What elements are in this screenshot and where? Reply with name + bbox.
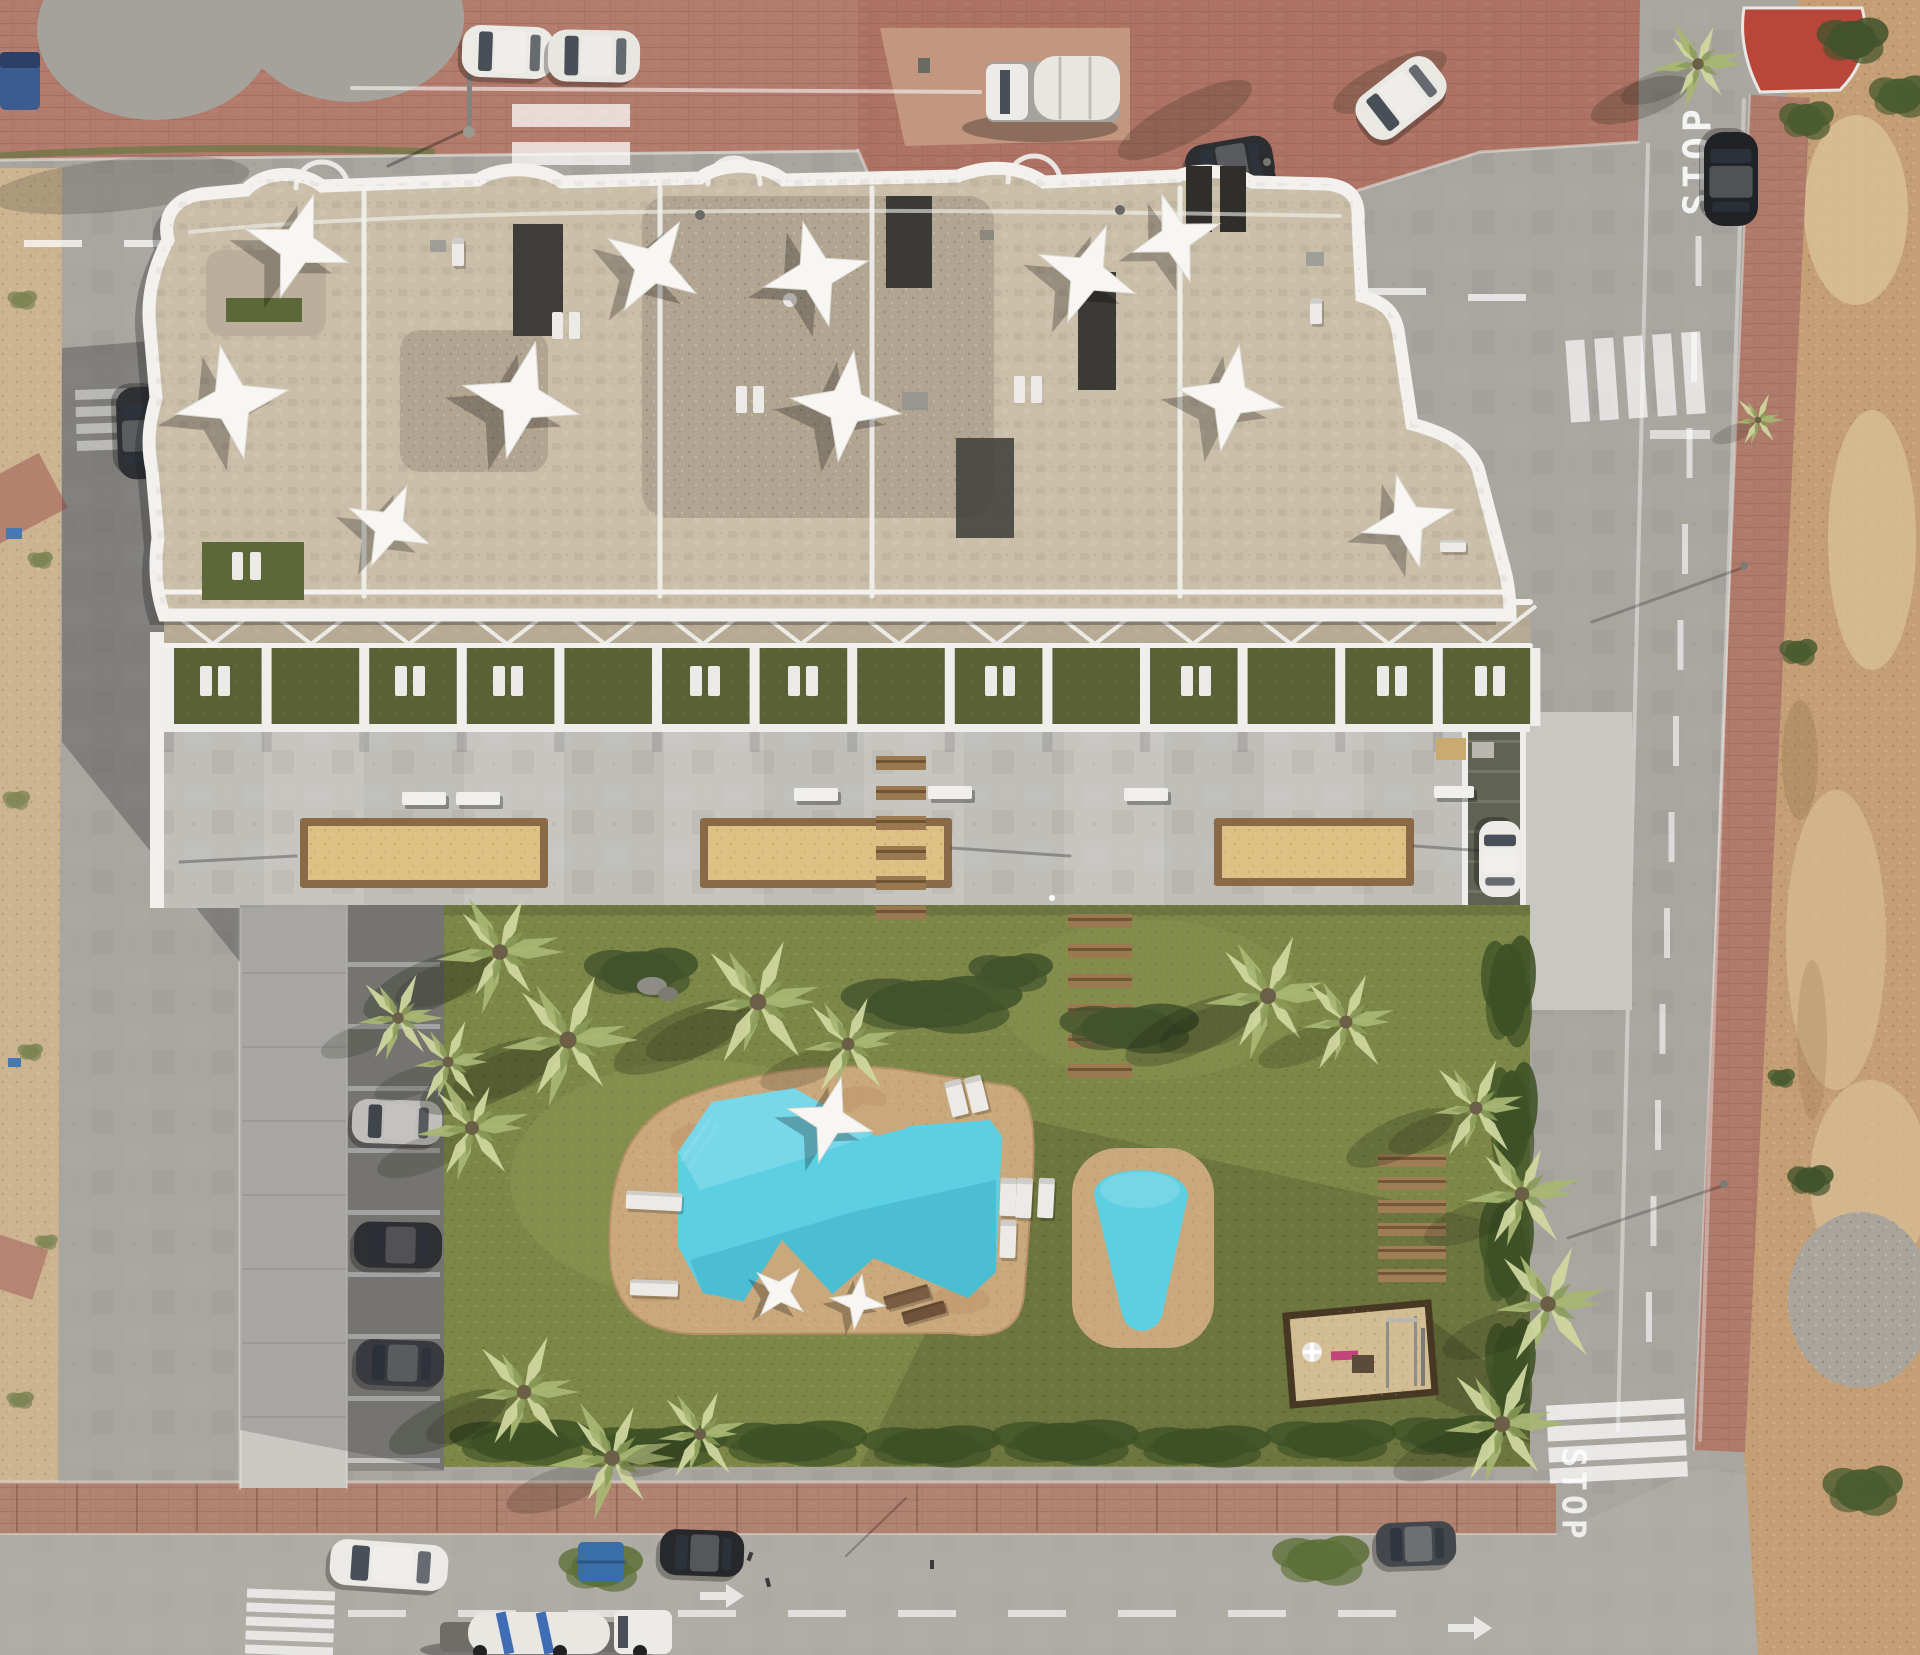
street-bin <box>918 58 930 73</box>
mixer-cab-glass <box>618 1616 628 1648</box>
roof-lounger <box>452 238 466 269</box>
parked-car <box>457 24 555 84</box>
swing-rail <box>1386 1318 1389 1388</box>
sidewalk-bottom-texture <box>0 1482 1556 1534</box>
complex-west-wall <box>150 632 164 908</box>
plaza-bench <box>402 792 449 809</box>
utility-box <box>1472 742 1494 758</box>
roof-ac-unit <box>430 240 446 252</box>
pedestrian <box>930 1560 934 1569</box>
dirt-sand-patch <box>1804 115 1908 305</box>
swing-rail <box>1414 1316 1417 1386</box>
scene-svg: STOPSTOP <box>0 0 1920 1655</box>
roof-vent <box>980 230 994 240</box>
truck-cab-glass <box>1000 70 1010 114</box>
stop-line-top <box>1650 430 1710 439</box>
roof-ac-unit <box>1306 252 1324 266</box>
playground-box <box>1352 1355 1374 1373</box>
terrace-front-wall <box>164 724 1530 732</box>
garden-stone <box>658 987 678 1001</box>
plaza-bench <box>1124 788 1171 805</box>
pool-lounger <box>625 1191 684 1215</box>
pool-lounger <box>1015 1178 1035 1222</box>
roof-turf <box>226 298 302 322</box>
truck-blue-cab <box>0 52 40 68</box>
scene-root: STOPSTOP <box>0 0 1920 1655</box>
lamp-head <box>463 126 475 138</box>
roof-lounger <box>1440 540 1468 555</box>
van-white <box>324 1538 449 1597</box>
small-pool-highlight <box>1100 1172 1180 1208</box>
lawn-edge-shade <box>444 905 1530 915</box>
litter-blue <box>6 528 22 539</box>
roof-ac-unit <box>902 392 928 410</box>
plaza-bench <box>794 788 841 805</box>
roof-core-dark <box>1220 166 1246 232</box>
plaza-bench <box>928 786 975 803</box>
plaza-bench <box>456 792 503 809</box>
plaza-bench <box>1434 786 1477 802</box>
litter-blue <box>8 1058 21 1067</box>
roof-vent <box>1115 205 1125 215</box>
suv-dark <box>1699 128 1758 226</box>
playground-pole <box>1421 1328 1425 1386</box>
truck-tank <box>1034 56 1120 120</box>
roof-gravel-texture <box>642 196 994 518</box>
ramp-car <box>1474 817 1521 897</box>
parked-car <box>543 29 640 88</box>
playground-spinner-blade <box>1310 1343 1314 1361</box>
car-gray-bottom <box>1371 1521 1457 1573</box>
roof-core-dark <box>956 438 1014 538</box>
scooter-rider <box>1263 158 1271 166</box>
roof-lounger <box>1310 298 1324 327</box>
roof-core-dark <box>1186 166 1212 232</box>
lamp-head <box>1720 1180 1728 1188</box>
swing-crossbar <box>1386 1318 1417 1322</box>
planter-sand-texture <box>1222 826 1406 878</box>
stop-marking-bottom: STOP <box>1555 1447 1594 1542</box>
planter-sand-texture <box>308 826 540 880</box>
sprinkler <box>1049 895 1055 901</box>
utility-box <box>1436 738 1466 760</box>
roof-vent <box>695 210 705 220</box>
dirt-sand-patch <box>1828 410 1916 670</box>
dirt-rut <box>1797 960 1827 1120</box>
lamp-head <box>1740 562 1748 570</box>
pool-lounger <box>999 1220 1018 1262</box>
car-dark-bottom <box>655 1528 745 1582</box>
pool-lounger <box>630 1279 681 1300</box>
pool-lounger <box>1037 1178 1057 1222</box>
dirt-rut <box>1782 700 1818 820</box>
aerial-site-render: STOPSTOP <box>0 0 1920 1655</box>
